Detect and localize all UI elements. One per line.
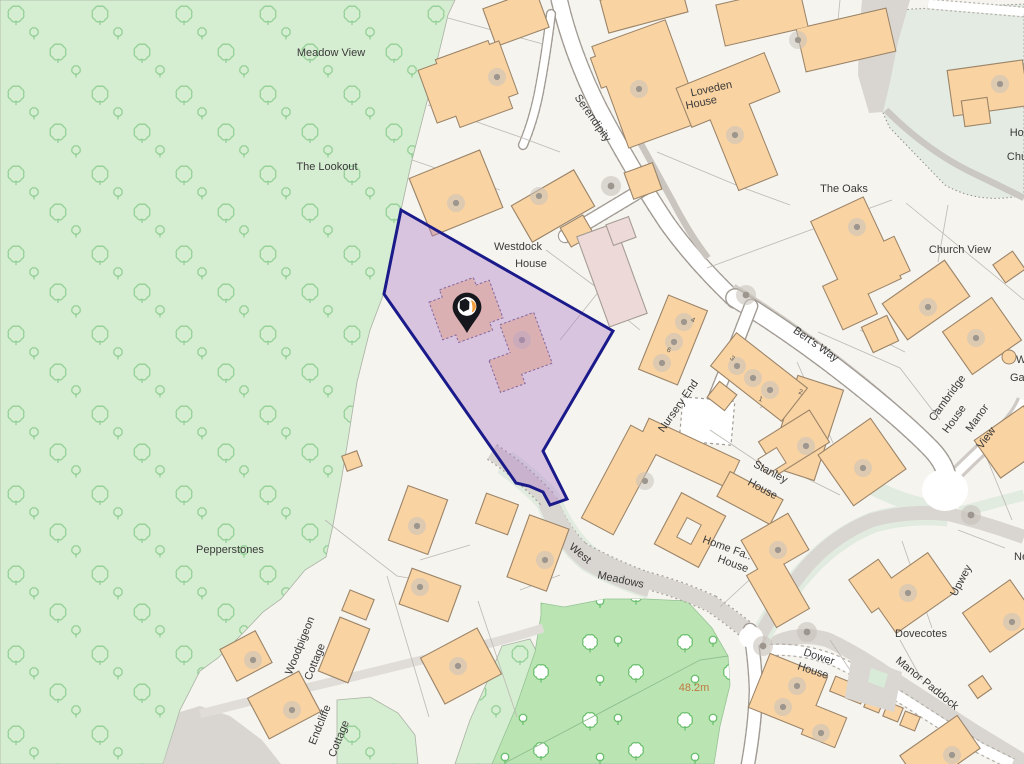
svg-text:Ne: Ne — [1014, 551, 1024, 563]
svg-text:Wa: Wa — [1016, 354, 1024, 366]
svg-text:Westdock: Westdock — [494, 241, 543, 253]
svg-text:Ga: Ga — [1010, 372, 1024, 384]
svg-text:Church View: Church View — [929, 244, 991, 256]
svg-text:Meadow View: Meadow View — [297, 47, 365, 59]
svg-text:Pepperstones: Pepperstones — [196, 544, 264, 556]
svg-text:T: T — [933, 410, 938, 417]
svg-text:House: House — [515, 258, 547, 270]
svg-text:48.2m: 48.2m — [679, 682, 710, 694]
svg-text:Chu: Chu — [1007, 151, 1024, 163]
svg-text:Hol: Hol — [1010, 127, 1024, 139]
svg-text:The Oaks: The Oaks — [820, 183, 868, 195]
svg-text:The Lookout: The Lookout — [296, 161, 357, 173]
svg-text:Dovecotes: Dovecotes — [895, 628, 947, 640]
